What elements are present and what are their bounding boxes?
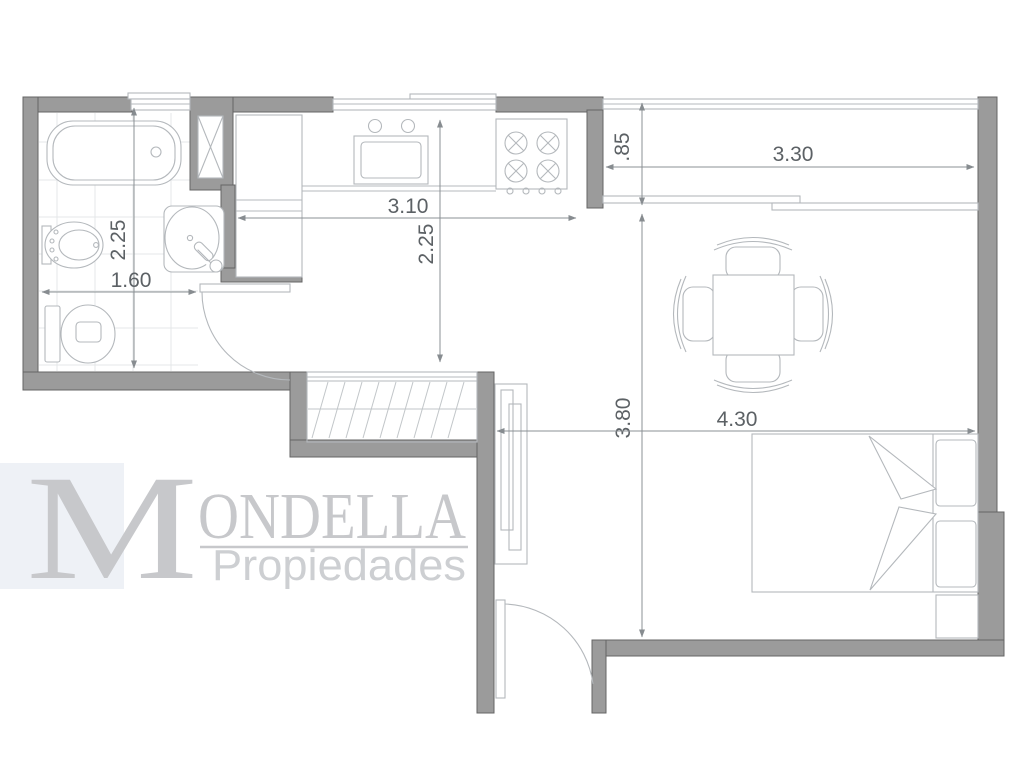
wall-top-bathroom — [23, 97, 132, 112]
dim-label-kitchen-depth: 2.25 — [415, 224, 438, 265]
wardrobe-icon — [495, 384, 527, 564]
bathroom-door-leaf — [200, 284, 290, 292]
kitchen-counter-left-block — [236, 115, 302, 277]
dim-label-bathroom-depth: 2.25 — [107, 220, 130, 261]
wall-right-upper — [978, 97, 997, 514]
floor-plan-drawing: M ONDELLA Propiedades — [0, 0, 1024, 768]
wall-hall-living-divider — [477, 372, 494, 713]
bidet-icon — [42, 222, 103, 268]
dining-chair-top — [714, 238, 792, 280]
bathroom-door-swing-arc — [202, 292, 290, 380]
toilet-icon — [45, 305, 115, 363]
balcony-sliding-door — [603, 196, 978, 210]
dim-label-living-width: 4.30 — [717, 408, 758, 431]
dim-label-balcony-depth: .85 — [611, 132, 634, 161]
dining-chair-right — [791, 276, 833, 352]
logo-subtitle: Propiedades — [212, 541, 466, 590]
logo-initial: M — [26, 445, 198, 611]
dining-table — [713, 275, 794, 355]
dim-label-bathroom-width: 1.60 — [111, 269, 152, 292]
wall-right-lower — [978, 512, 1004, 656]
watermark-logo: M ONDELLA Propiedades — [0, 445, 468, 611]
stove-icon — [496, 119, 567, 194]
dining-chair-left — [674, 276, 716, 352]
wall-left — [23, 97, 38, 390]
bathroom-door — [200, 284, 290, 380]
wall-entry-right — [592, 640, 606, 713]
wall-bottom-bedroom — [592, 640, 1004, 656]
entry-door-swing-arc — [505, 604, 593, 684]
entry-door — [496, 600, 593, 698]
entry-door-leaf — [496, 600, 505, 698]
closet-hatched — [307, 372, 477, 442]
window-sill-bathroom — [128, 93, 190, 99]
dim-label-balcony-width: 3.30 — [773, 143, 814, 166]
bed-icon — [752, 434, 978, 592]
bathroom-sink-icon — [164, 206, 224, 272]
wall-bathroom-bottom — [23, 372, 307, 390]
dining-chair-bottom — [714, 350, 792, 393]
pillow-top — [936, 440, 976, 506]
kitchen-sink-icon — [354, 120, 428, 185]
dim-label-living-depth: 3.80 — [612, 398, 635, 439]
living-dining — [674, 238, 833, 393]
pillow-bottom — [936, 521, 976, 587]
dim-label-kitchen-width: 3.10 — [388, 195, 429, 218]
bathtub-icon — [47, 121, 181, 185]
wall-balcony-left — [587, 110, 603, 208]
vent-shaft-icon — [198, 116, 223, 178]
floor-plan-page: M ONDELLA Propiedades — [0, 0, 1024, 768]
nightstand-icon — [936, 595, 978, 638]
